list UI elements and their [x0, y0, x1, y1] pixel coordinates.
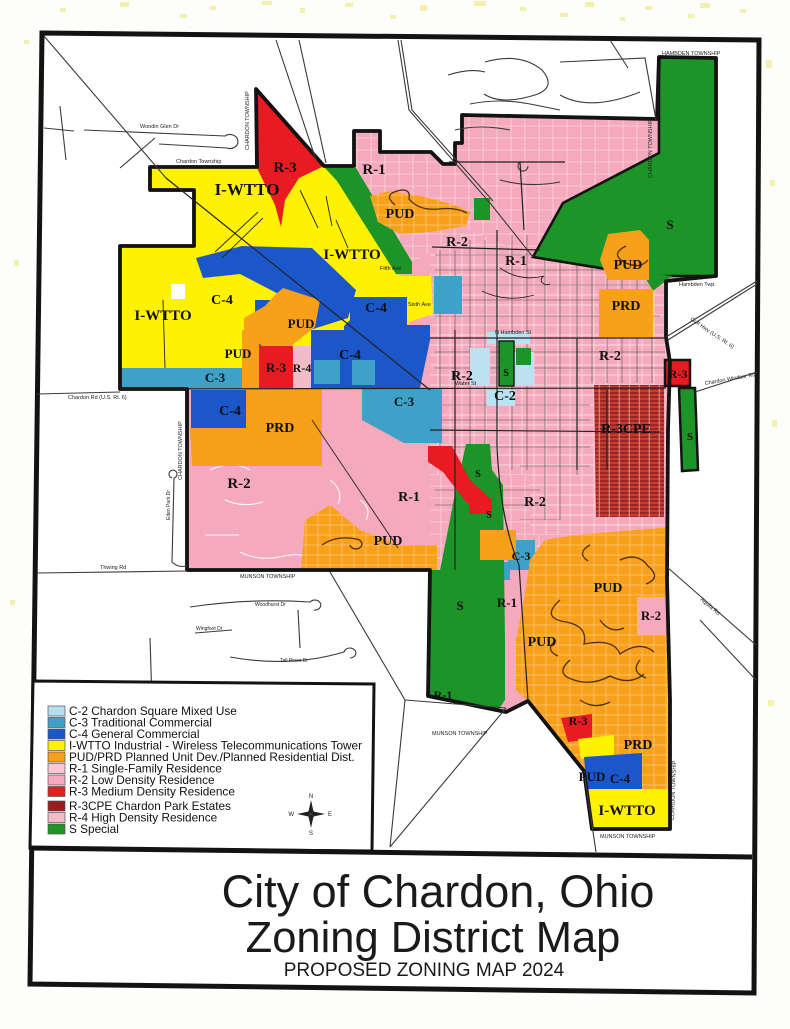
- svg-text:Zoning District Map: Zoning District Map: [246, 914, 621, 962]
- svg-text:R-1: R-1: [434, 688, 453, 702]
- svg-text:C-4: C-4: [219, 404, 241, 419]
- svg-text:C-4: C-4: [610, 771, 631, 786]
- svg-text:W: W: [288, 812, 294, 818]
- svg-text:MUNSON TOWNSHIP: MUNSON TOWNSHIP: [600, 834, 656, 840]
- svg-text:Hambden Twp.: Hambden Twp.: [679, 282, 716, 288]
- svg-text:R-4: R-4: [293, 361, 312, 375]
- svg-text:S: S: [503, 368, 509, 379]
- svg-text:R-1: R-1: [362, 162, 385, 178]
- svg-text:R-2: R-2: [524, 495, 546, 510]
- svg-text:Woodin Glen Dr: Woodin Glen Dr: [140, 124, 179, 130]
- svg-text:N Hambden St: N Hambden St: [495, 330, 532, 336]
- svg-text:S: S: [309, 831, 313, 837]
- svg-text:R-3: R-3: [569, 714, 588, 728]
- svg-text:I-WTTO: I-WTTO: [323, 247, 380, 263]
- svg-text:I-WTTO: I-WTTO: [215, 180, 280, 199]
- svg-text:PUD: PUD: [579, 769, 606, 784]
- svg-text:R-3 Medium Density Residence: R-3 Medium Density Residence: [69, 785, 235, 799]
- svg-text:R-2: R-2: [599, 349, 621, 364]
- svg-text:CHARDON TOWNSHIP: CHARDON TOWNSHIP: [245, 91, 251, 150]
- svg-text:PUD: PUD: [386, 207, 415, 222]
- svg-text:C-4: C-4: [339, 348, 361, 363]
- svg-text:PUD: PUD: [288, 316, 315, 331]
- svg-text:S: S: [486, 510, 492, 521]
- svg-text:S: S: [456, 598, 463, 613]
- svg-text:R-2: R-2: [227, 476, 250, 492]
- svg-text:City of Chardon, Ohio: City of Chardon, Ohio: [222, 866, 655, 917]
- svg-text:E: E: [328, 812, 332, 818]
- svg-text:S: S: [475, 469, 481, 480]
- svg-text:CHARDON TOWNSHIP: CHARDON TOWNSHIP: [648, 119, 654, 178]
- svg-text:R-3: R-3: [266, 360, 287, 375]
- svg-text:PUD: PUD: [528, 635, 557, 650]
- svg-text:Chardon Rd (U.S. Rt. 6): Chardon Rd (U.S. Rt. 6): [68, 395, 127, 401]
- svg-text:R-1: R-1: [398, 490, 420, 505]
- svg-text:PRD: PRD: [266, 421, 295, 436]
- svg-text:PUD: PUD: [614, 258, 643, 273]
- svg-text:S Special: S Special: [69, 822, 119, 836]
- svg-text:Sixth Ave: Sixth Ave: [408, 302, 431, 308]
- svg-text:PUD: PUD: [594, 581, 623, 596]
- svg-text:S: S: [666, 217, 673, 232]
- svg-text:PUD: PUD: [374, 534, 403, 549]
- svg-text:C-4: C-4: [211, 293, 233, 308]
- svg-text:C-4: C-4: [365, 301, 387, 316]
- svg-text:I-WTTO: I-WTTO: [134, 308, 191, 324]
- svg-text:I-WTTO: I-WTTO: [598, 803, 655, 819]
- svg-text:Fifth Ave: Fifth Ave: [380, 266, 401, 272]
- svg-text:PRD: PRD: [612, 299, 641, 314]
- svg-text:C-3: C-3: [394, 394, 415, 409]
- svg-text:PRD: PRD: [624, 738, 653, 753]
- svg-text:R-3CPE: R-3CPE: [601, 422, 651, 437]
- svg-text:Wingfoot Dr: Wingfoot Dr: [196, 626, 223, 632]
- svg-text:Tall Pines Dr: Tall Pines Dr: [280, 658, 308, 664]
- svg-text:MUNSON TOWNSHIP: MUNSON TOWNSHIP: [432, 731, 488, 737]
- svg-text:MUNSON TOWNSHIP: MUNSON TOWNSHIP: [240, 574, 296, 580]
- svg-text:Eden Park Dr: Eden Park Dr: [166, 490, 172, 520]
- svg-text:CHARDON TOWNSHIP: CHARDON TOWNSHIP: [178, 421, 184, 480]
- svg-text:R-3: R-3: [273, 160, 296, 176]
- svg-text:R-1: R-1: [497, 595, 517, 610]
- svg-text:C-2: C-2: [494, 389, 516, 404]
- svg-text:HAMBDEN TOWNSHIP: HAMBDEN TOWNSHIP: [662, 51, 721, 57]
- svg-text:Chardon Township: Chardon Township: [176, 159, 221, 165]
- svg-text:R-2: R-2: [641, 608, 661, 623]
- svg-text:R-1: R-1: [505, 254, 527, 269]
- svg-text:R-3: R-3: [669, 367, 688, 381]
- svg-text:R-2: R-2: [446, 235, 468, 250]
- svg-text:N: N: [309, 794, 313, 800]
- svg-text:PUD: PUD: [225, 346, 252, 361]
- svg-text:R-2: R-2: [451, 369, 473, 384]
- svg-text:S: S: [687, 431, 693, 443]
- svg-text:Thwing Rd: Thwing Rd: [100, 565, 126, 571]
- svg-text:C-3: C-3: [205, 370, 226, 385]
- svg-text:C-3: C-3: [512, 549, 531, 563]
- svg-text:PROPOSED ZONING MAP 2024: PROPOSED ZONING MAP 2024: [284, 960, 565, 981]
- svg-text:Woodhurst Dr: Woodhurst Dr: [255, 602, 286, 608]
